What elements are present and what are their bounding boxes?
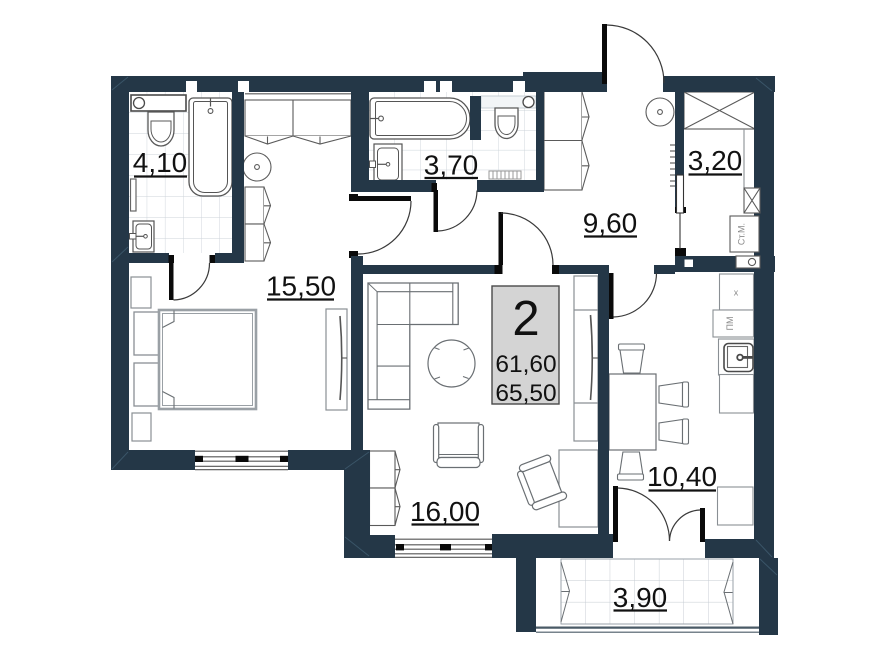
svg-text:15,50: 15,50 xyxy=(266,271,336,302)
svg-text:ПМ: ПМ xyxy=(725,317,735,331)
svg-text:4,10: 4,10 xyxy=(133,147,188,178)
svg-text:61,60: 61,60 xyxy=(495,351,556,378)
svg-text:16,00: 16,00 xyxy=(410,496,480,527)
svg-text:65,50: 65,50 xyxy=(495,380,556,407)
svg-text:2: 2 xyxy=(512,292,539,346)
svg-text:x: x xyxy=(734,288,739,298)
svg-text:3,70: 3,70 xyxy=(424,150,479,181)
svg-text:3,90: 3,90 xyxy=(613,582,668,613)
svg-text:10,40: 10,40 xyxy=(647,461,717,492)
svg-text:9,60: 9,60 xyxy=(583,208,638,239)
svg-text:3,20: 3,20 xyxy=(688,145,743,176)
svg-text:Ст.М.: Ст.М. xyxy=(737,223,747,245)
